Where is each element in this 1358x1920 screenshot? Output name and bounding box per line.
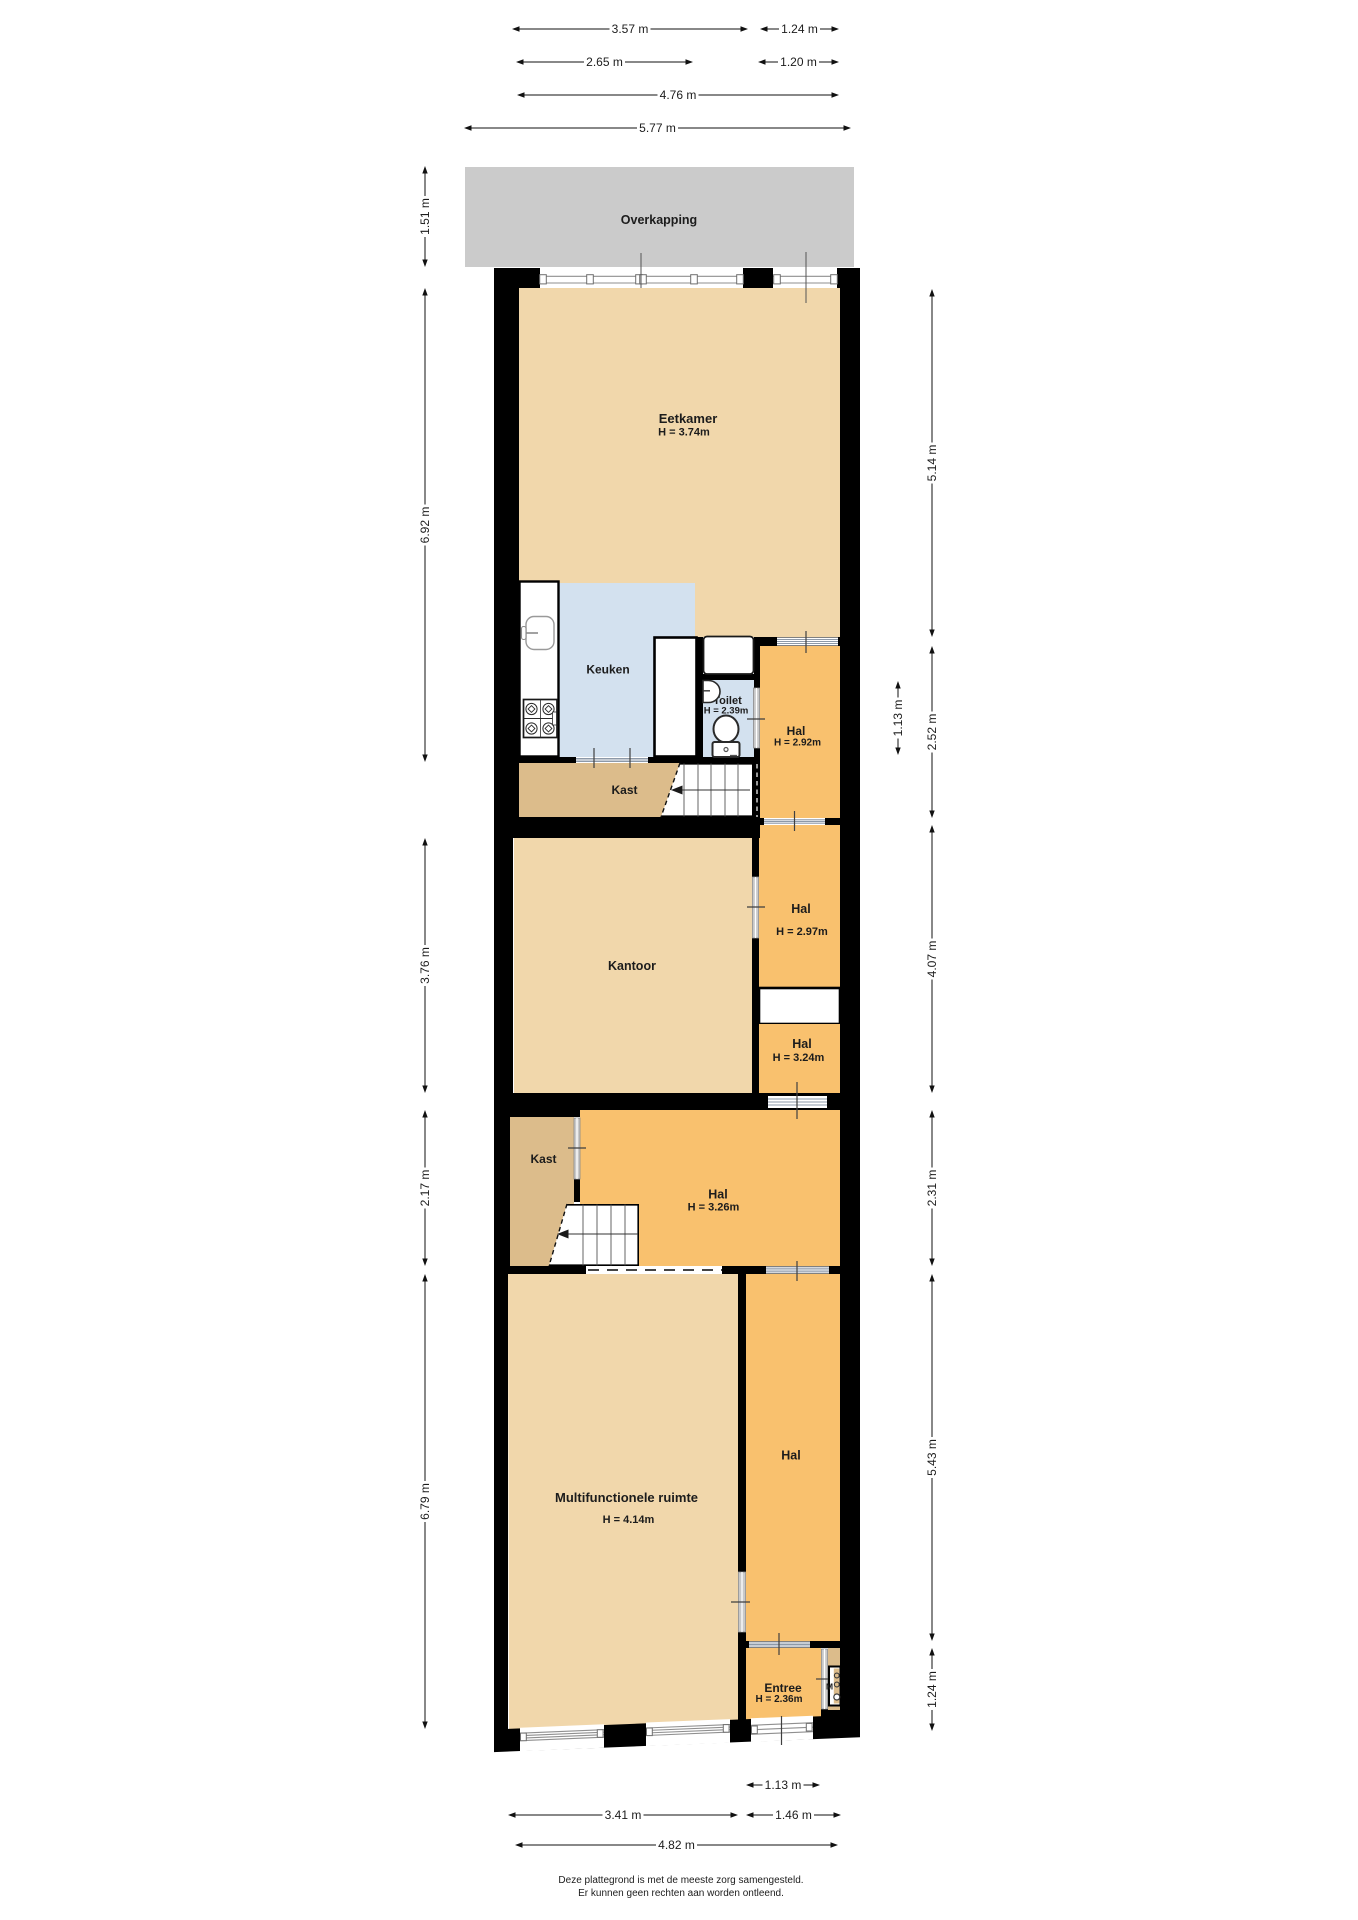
svg-text:6.92 m: 6.92 m xyxy=(418,507,432,544)
svg-text:H = 3.74m: H = 3.74m xyxy=(658,427,710,439)
svg-text:H = 3.24m: H = 3.24m xyxy=(773,1052,825,1064)
svg-text:1.13 m: 1.13 m xyxy=(765,1778,802,1792)
svg-text:1.46 m: 1.46 m xyxy=(775,1808,812,1822)
svg-text:H = 2.92m: H = 2.92m xyxy=(774,738,821,749)
svg-text:Hal: Hal xyxy=(791,902,810,916)
svg-text:Entree: Entree xyxy=(764,1681,802,1695)
svg-text:2.52 m: 2.52 m xyxy=(925,714,939,751)
svg-text:1.20 m: 1.20 m xyxy=(780,55,817,69)
svg-text:H = 4.14m: H = 4.14m xyxy=(603,1514,655,1526)
svg-text:5.43 m: 5.43 m xyxy=(925,1439,939,1476)
svg-text:3.41 m: 3.41 m xyxy=(605,1808,642,1822)
svg-text:Multifunctionele ruimte: Multifunctionele ruimte xyxy=(555,1490,698,1505)
svg-text:3.57 m: 3.57 m xyxy=(612,22,649,36)
svg-text:Deze plattegrond is met de mee: Deze plattegrond is met de meeste zorg s… xyxy=(558,1875,803,1886)
svg-text:Er kunnen geen rechten aan wor: Er kunnen geen rechten aan worden ontlee… xyxy=(578,1888,784,1899)
svg-text:4.07 m: 4.07 m xyxy=(925,941,939,978)
svg-text:H = 3.26m: H = 3.26m xyxy=(688,1202,740,1214)
svg-text:Hal: Hal xyxy=(708,1188,727,1202)
svg-text:M: M xyxy=(826,1682,833,1692)
svg-text:1.13 m: 1.13 m xyxy=(891,700,905,737)
svg-text:4.82 m: 4.82 m xyxy=(658,1838,695,1852)
svg-text:2.31 m: 2.31 m xyxy=(925,1170,939,1207)
svg-text:1.24 m: 1.24 m xyxy=(781,22,818,36)
svg-text:Hal: Hal xyxy=(781,1449,800,1463)
svg-text:H = 2.36m: H = 2.36m xyxy=(756,1694,803,1705)
svg-text:2.65 m: 2.65 m xyxy=(586,55,623,69)
svg-text:1.24 m: 1.24 m xyxy=(925,1671,939,1708)
svg-text:Eetkamer: Eetkamer xyxy=(659,411,718,426)
svg-text:Kantoor: Kantoor xyxy=(608,959,656,973)
svg-text:5.14 m: 5.14 m xyxy=(925,445,939,482)
svg-text:Overkapping: Overkapping xyxy=(621,213,697,227)
svg-text:6.79 m: 6.79 m xyxy=(418,1483,432,1520)
svg-text:H = 2.97m: H = 2.97m xyxy=(776,926,828,938)
svg-text:Keuken: Keuken xyxy=(586,663,629,677)
svg-text:5.77 m: 5.77 m xyxy=(639,121,676,135)
svg-text:Hal: Hal xyxy=(792,1037,811,1051)
svg-text:1.51 m: 1.51 m xyxy=(418,198,432,235)
svg-text:Kast: Kast xyxy=(611,783,637,797)
svg-text:3.76 m: 3.76 m xyxy=(418,947,432,984)
svg-text:2.17 m: 2.17 m xyxy=(418,1170,432,1207)
svg-text:4.76 m: 4.76 m xyxy=(660,88,697,102)
svg-text:Hal: Hal xyxy=(787,724,806,738)
svg-text:Kast: Kast xyxy=(530,1152,556,1166)
